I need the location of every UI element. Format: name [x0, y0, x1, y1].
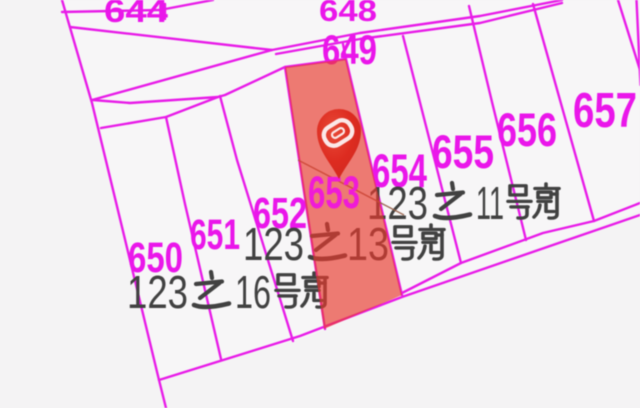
- svg-text:648: 648: [319, 0, 377, 28]
- svg-text:656: 656: [497, 103, 557, 156]
- svg-text:11: 11: [476, 177, 504, 229]
- svg-text:16: 16: [235, 266, 271, 318]
- svg-text:123: 123: [243, 218, 304, 270]
- svg-text:123: 123: [127, 266, 188, 318]
- svg-text:653: 653: [308, 167, 360, 218]
- svg-text:651: 651: [190, 211, 240, 259]
- svg-text:657: 657: [573, 84, 637, 138]
- svg-text:644: 644: [104, 0, 168, 29]
- svg-text:655: 655: [432, 125, 494, 178]
